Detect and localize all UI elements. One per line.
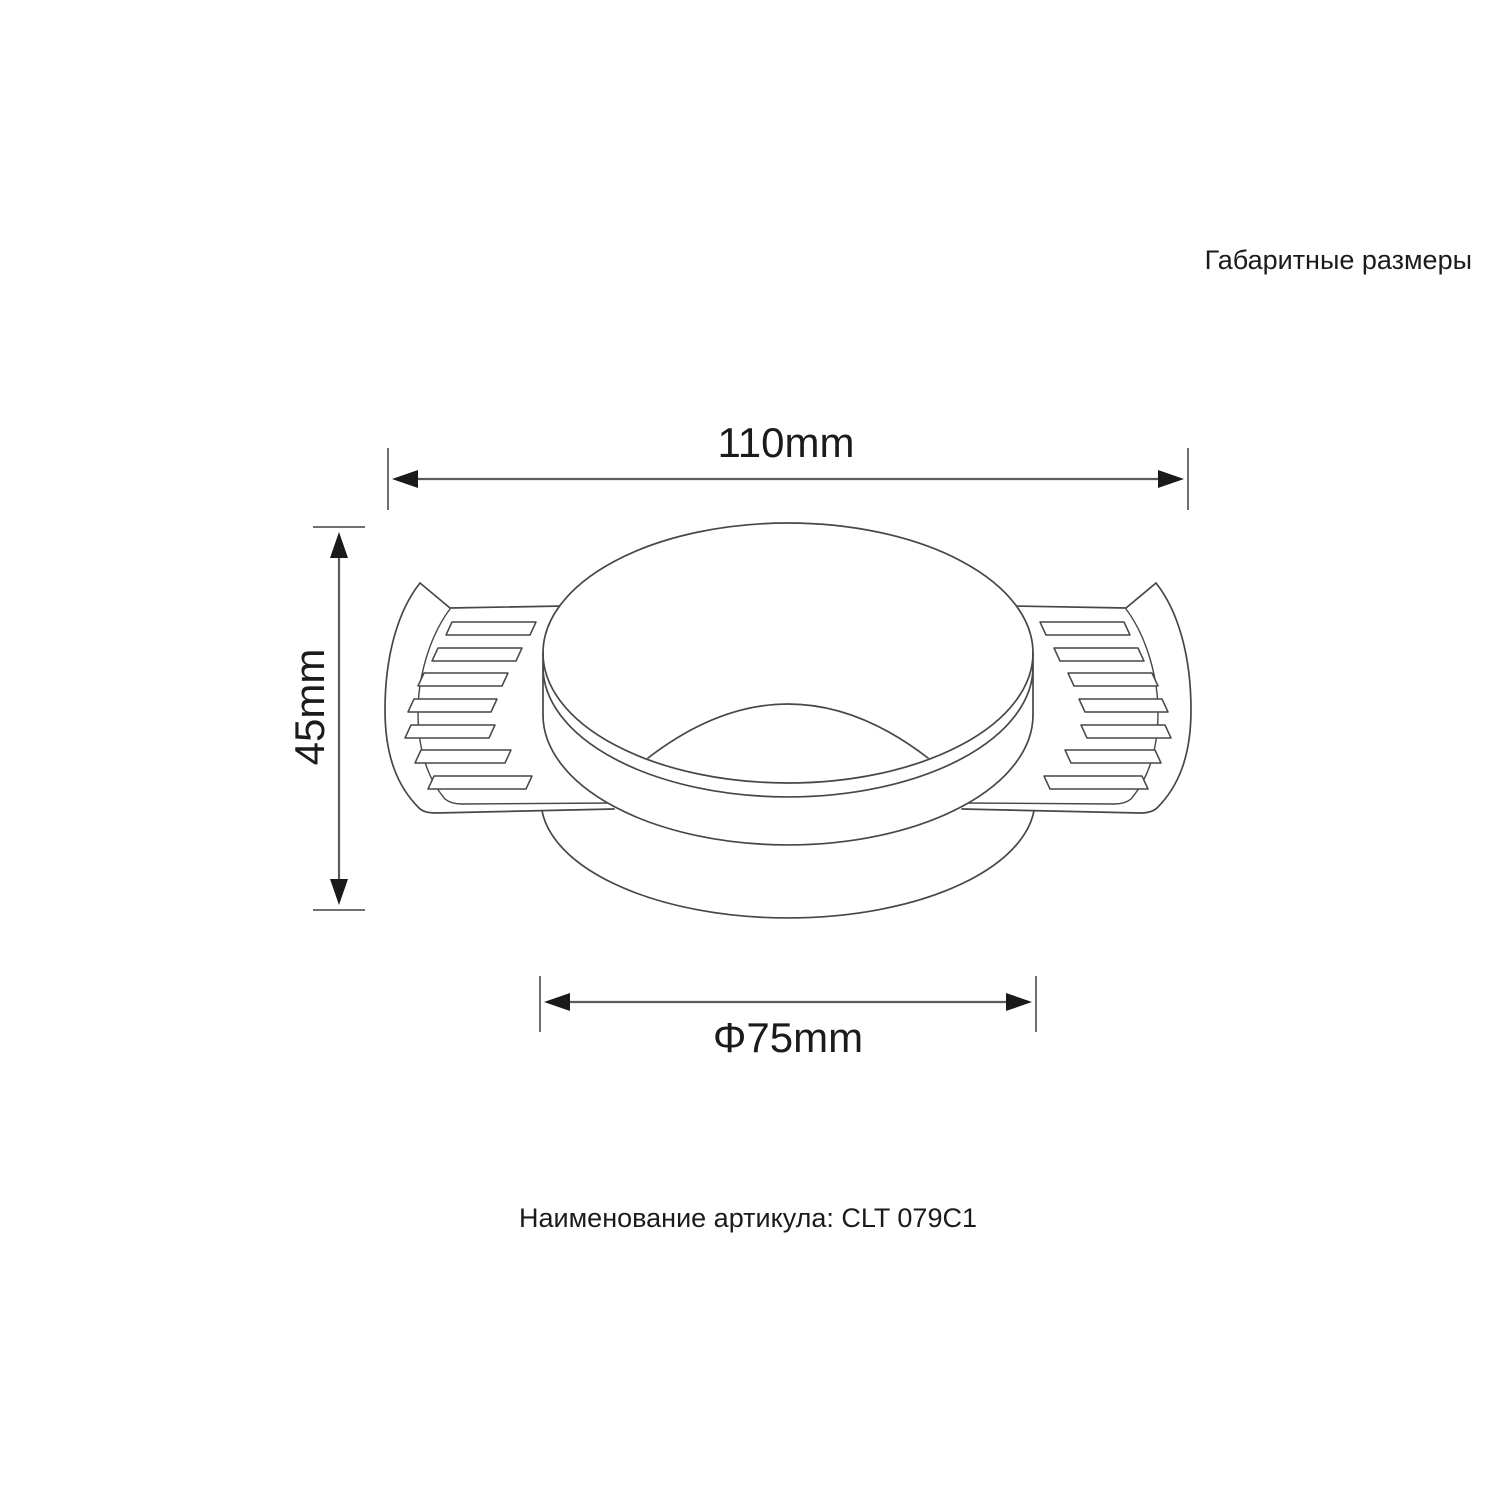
dim-width-label: 110mm	[718, 421, 855, 465]
bracket-slot	[408, 699, 497, 712]
bracket-slot	[1081, 725, 1171, 738]
bracket-slot	[415, 750, 511, 763]
bracket-slot	[1065, 750, 1161, 763]
dim-diameter-arrow-left	[544, 993, 570, 1011]
dimension-drawing-page: Габаритные размеры 110mm 45mm Φ75mm Наим…	[0, 0, 1500, 1500]
dim-height-arrow-bottom	[330, 879, 348, 905]
bracket-slot	[428, 776, 532, 789]
dim-diameter-arrow-right	[1006, 993, 1032, 1011]
article-code: CLT 079C1	[841, 1203, 977, 1233]
bracket-slot	[432, 648, 522, 661]
bracket-slot	[1040, 622, 1130, 635]
bracket-slot	[1079, 699, 1168, 712]
fixture-drawing	[385, 523, 1191, 918]
dim-width-arrow-right	[1158, 470, 1184, 488]
dim-height-arrow-top	[330, 532, 348, 558]
bracket-slot	[405, 725, 495, 738]
bracket-slot	[1068, 673, 1158, 686]
dim-diameter-label: Φ75mm	[713, 1016, 863, 1060]
bracket-slot	[1044, 776, 1148, 789]
trim-ring	[543, 523, 1033, 845]
article-caption-label: Наименование артикула:	[519, 1203, 834, 1233]
article-caption: Наименование артикула: CLT 079C1	[519, 1202, 977, 1234]
bracket-slot	[418, 673, 508, 686]
bracket-slot	[446, 622, 536, 635]
fixture-drawing-canvas	[0, 0, 1500, 1500]
dim-width-arrow-left	[392, 470, 418, 488]
bracket-slot	[1054, 648, 1144, 661]
page-title: Габаритные размеры	[1205, 246, 1472, 276]
dim-height-label: 45mm	[288, 649, 332, 766]
